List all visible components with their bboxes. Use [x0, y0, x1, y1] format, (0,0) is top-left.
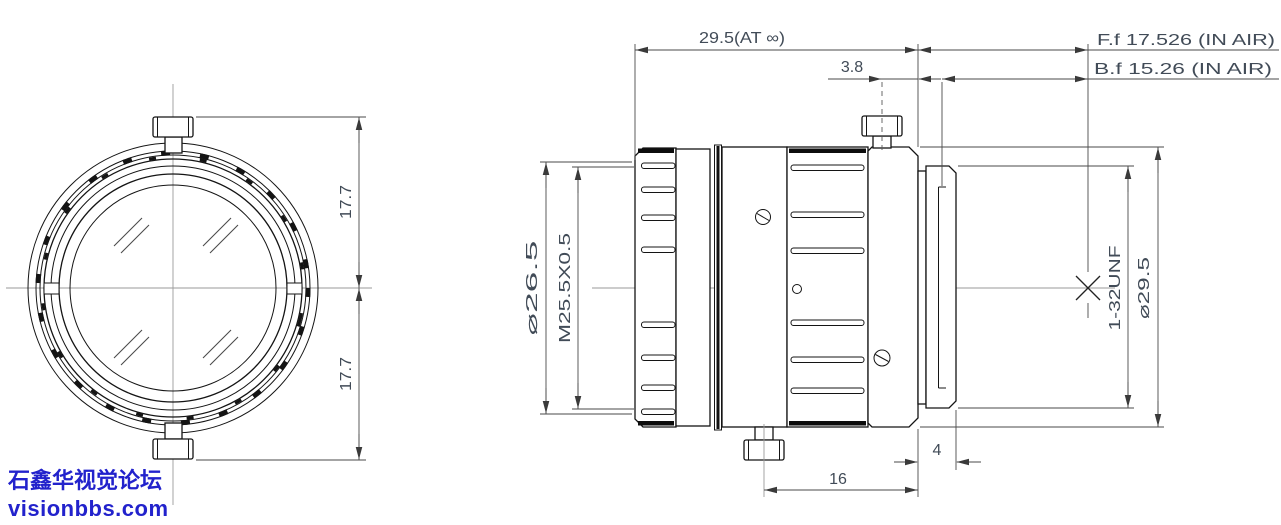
front-notch-right — [287, 283, 302, 294]
dim-screw-to-flange: 3.8 — [841, 59, 863, 76]
watermark-site-url: visionbbs.com — [8, 496, 169, 521]
dim-mount-thread: 1-32UNF — [1107, 245, 1124, 330]
mount-spacer — [918, 171, 926, 404]
front-view: 17.7 17.7 — [6, 84, 372, 505]
dim-total-length: 29.5(AT ∞) — [699, 30, 785, 47]
front-notch-left — [44, 283, 59, 294]
lens-mechanical-drawing-page: 17.7 17.7 — [0, 0, 1281, 525]
front-top-thumbscrew — [153, 117, 193, 153]
watermark-forum-name: 石鑫华视觉论坛 — [7, 468, 162, 493]
front-bottom-thumbscrew — [153, 423, 193, 459]
front-collar — [676, 149, 710, 426]
dim-half-height-upper: 17.7 — [338, 185, 355, 219]
side-view — [592, 44, 1115, 460]
index-hole-icon — [793, 285, 802, 294]
dim-filter-thread: M25.5X0.5 — [557, 233, 574, 343]
dim-front-focal: F.f 17.526 (IN AIR) — [1097, 32, 1275, 49]
image-plane-marker — [1076, 44, 1100, 318]
c-mount-thread — [926, 166, 956, 408]
aperture-ring — [787, 147, 868, 427]
dim-front-diameter: ⌀26.5 — [524, 240, 541, 335]
glass-hatch-marks — [114, 218, 238, 365]
mount-base — [868, 147, 918, 427]
dim-half-height-lower: 17.7 — [338, 357, 355, 391]
dim-rear-length: 16 — [829, 471, 847, 488]
dim-body-diameter: ⌀29.5 — [1136, 257, 1153, 319]
dim-mount-length: 4 — [933, 442, 942, 459]
focus-ring — [635, 148, 676, 427]
bead-ring — [715, 145, 722, 430]
lens-drawing-canvas: 17.7 17.7 — [0, 0, 1281, 525]
mid-barrel — [722, 147, 787, 427]
dim-back-focal: B.f 15.26 (IN AIR) — [1094, 61, 1272, 78]
watermark: 石鑫华视觉论坛 visionbbs.com — [7, 468, 169, 521]
